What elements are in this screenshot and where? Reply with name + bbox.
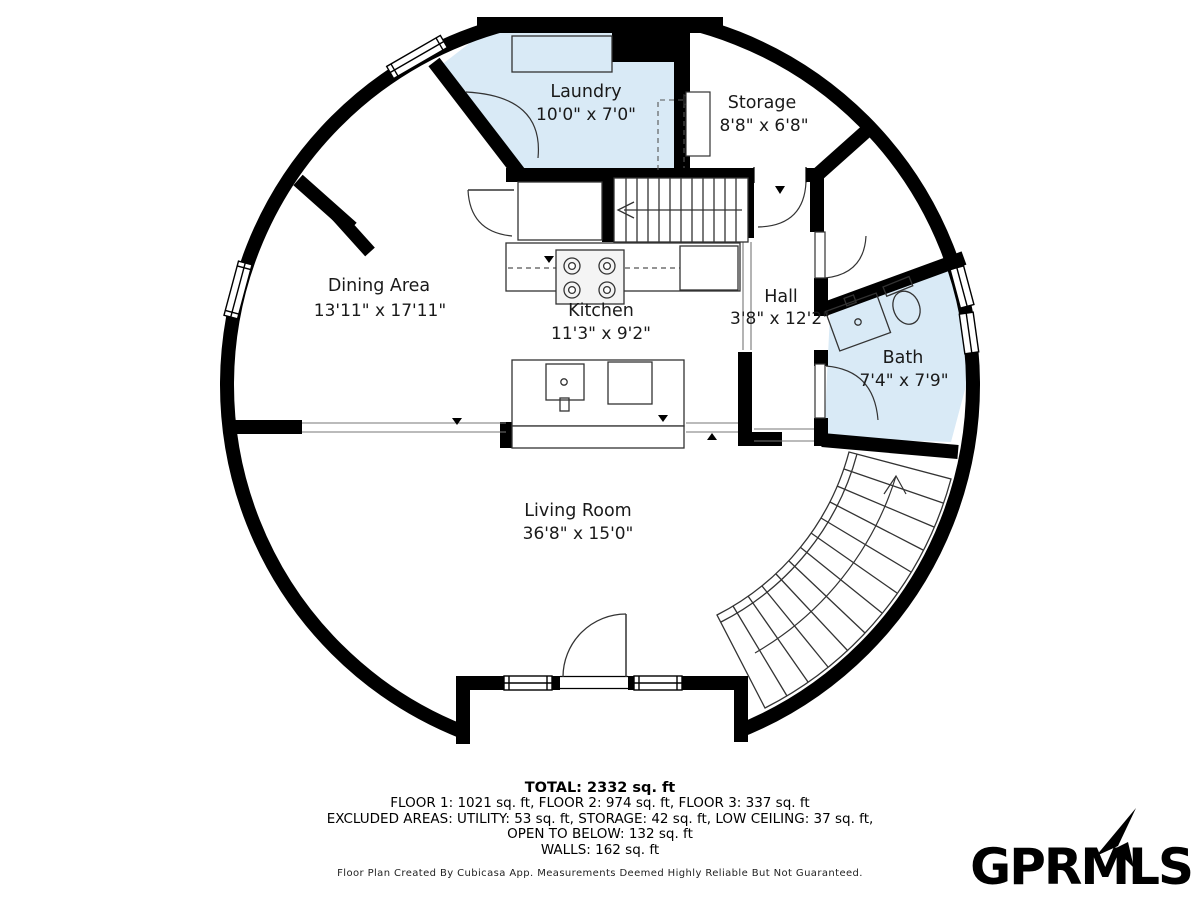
closet xyxy=(468,182,602,240)
front-door xyxy=(560,614,628,691)
room-label-bath: Bath xyxy=(883,348,924,368)
room-dims-dining: 13'11" x 17'11" xyxy=(314,301,446,321)
room-label-storage: Storage xyxy=(728,93,796,113)
stove-burners-icon xyxy=(556,250,624,304)
door-swing-icon xyxy=(468,190,514,236)
summary-floors: FLOOR 1: 1021 sq. ft, FLOOR 2: 974 sq. f… xyxy=(0,796,1200,812)
room-label-kitchen: Kitchen xyxy=(568,301,634,321)
room-label-hall: Hall xyxy=(764,287,798,307)
room-dims-laundry: 10'0" x 7'0" xyxy=(536,105,636,125)
kitchen-counter xyxy=(506,243,740,304)
room-dims-bath: 7'4" x 7'9" xyxy=(859,371,948,391)
room-dims-storage: 8'8" x 6'8" xyxy=(719,116,808,136)
room-label-living: Living Room xyxy=(524,501,631,521)
gprmls-logo: GPRMLS xyxy=(962,826,1192,896)
kitchen-island xyxy=(512,360,684,448)
storage-shelf xyxy=(686,92,710,156)
refrigerator xyxy=(680,246,738,290)
storage-door-opening xyxy=(754,167,806,194)
room-dims-hall: 3'8" x 12'2" xyxy=(730,309,830,329)
room-dims-kitchen: 11'3" x 9'2" xyxy=(551,324,651,344)
summary-total: TOTAL: 2332 sq. ft xyxy=(0,780,1200,796)
logo-arrow-icon xyxy=(1092,806,1150,872)
summary-excluded: EXCLUDED AREAS: UTILITY: 53 sq. ft, STOR… xyxy=(0,812,1200,828)
room-dims-living: 36'8" x 15'0" xyxy=(523,524,634,544)
room-label-dining: Dining Area xyxy=(328,276,430,296)
room-label-laundry: Laundry xyxy=(550,82,621,102)
floor-plan-canvas: Laundry 10'0" x 7'0" Storage 8'8" x 6'8"… xyxy=(0,0,1200,780)
gprmls-logo-text: GPRMLS xyxy=(970,838,1192,896)
